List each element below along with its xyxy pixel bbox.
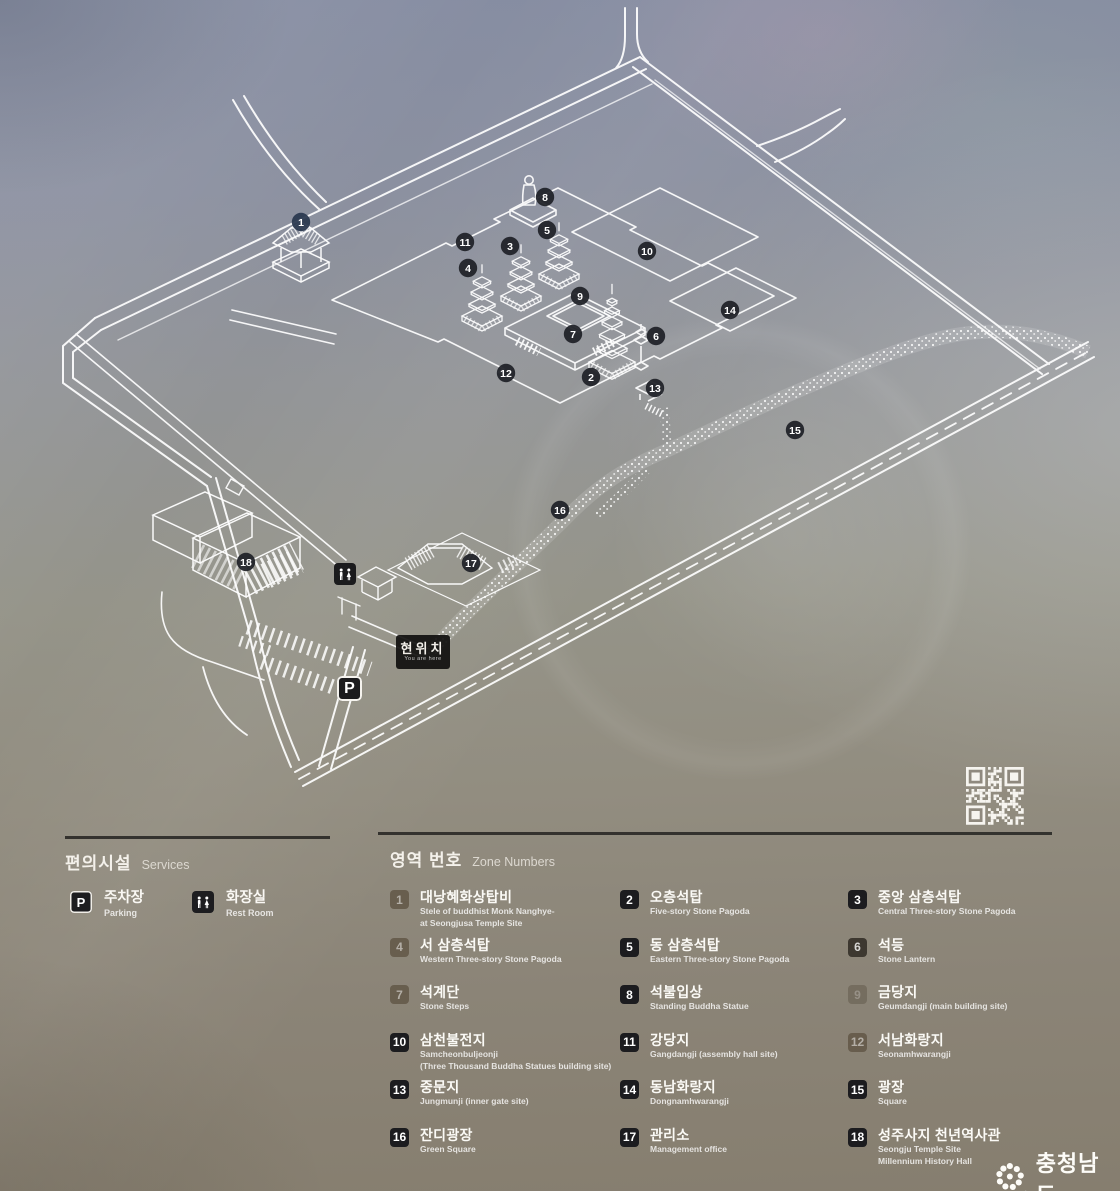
zone-number-badge: 11: [620, 1033, 639, 1052]
zone-item-11: 11강당지Gangdangji (assembly hall site): [620, 1032, 848, 1080]
zone-name-en: Stele of buddhist Monk Nanghye-: [420, 906, 555, 917]
map-marker-10: 10: [638, 242, 656, 260]
zone-item-6: 6석등Stone Lantern: [848, 937, 1110, 985]
zone-name-en: Samcheonbuljeonji: [420, 1049, 611, 1060]
map-marker-7: 7: [564, 325, 582, 343]
zone-name-ko: 서남화랑지: [878, 1032, 951, 1048]
parking-icon: P: [70, 891, 92, 913]
service-sublabel: Parking: [104, 908, 144, 918]
zone-name-ko: 동남화랑지: [650, 1079, 729, 1095]
zones-title-en: Zone Numbers: [472, 855, 555, 869]
map-marker-4: 4: [459, 259, 477, 277]
map-marker-15: 15: [786, 421, 804, 439]
zone-number-badge: 9: [848, 985, 867, 1004]
history-hall-building: [153, 492, 300, 597]
zone-name-ko: 금당지: [878, 984, 1007, 1000]
map-marker-2: 2: [582, 368, 600, 386]
zone-number-badge: 8: [620, 985, 639, 1004]
temple-complex-outline: [332, 176, 796, 414]
zone-name-en: Eastern Three-story Stone Pagoda: [650, 954, 789, 965]
zone-number-badge: 13: [390, 1080, 409, 1099]
zone-item-14: 14동남화랑지Dongnamhwarangji: [620, 1079, 848, 1127]
zone-name-en: Seonamhwarangji: [878, 1049, 951, 1060]
zone-number-badge: 14: [620, 1080, 639, 1099]
current-location-sublabel: You are here: [404, 657, 441, 663]
service-parking: P 주차장 Parking: [70, 891, 144, 918]
services-items: P 주차장 Parking 화장실 Rest Room: [70, 891, 274, 918]
svg-text:10: 10: [641, 246, 653, 258]
small-service-building: [358, 567, 396, 600]
svg-text:5: 5: [544, 225, 550, 237]
svg-text:14: 14: [724, 305, 736, 317]
map-marker-3: 3: [501, 237, 519, 255]
zone-name-en: Millennium History Hall: [878, 1156, 1001, 1167]
zone-name-ko: 성주사지 천년역사관: [878, 1127, 1001, 1143]
map-marker-5: 5: [538, 221, 556, 239]
zone-name-ko: 서 삼층석탑: [420, 937, 562, 953]
zone-name-ko: 광장: [878, 1079, 907, 1095]
services-title-en: Services: [142, 858, 190, 872]
services-title-ko: 편의시설: [65, 849, 132, 874]
zone-name-en: Management office: [650, 1144, 727, 1155]
svg-text:6: 6: [653, 331, 659, 343]
roads-and-boundary: [63, 8, 1094, 786]
zone-item-12: 12서남화랑지Seonamhwarangji: [848, 1032, 1110, 1080]
zone-name-en: Green Square: [420, 1144, 476, 1155]
zone-number-badge: 10: [390, 1033, 409, 1052]
svg-text:11: 11: [459, 237, 470, 249]
zone-name-en: Gangdangji (assembly hall site): [650, 1049, 778, 1060]
chungnam-flower-icon: [990, 1158, 1030, 1191]
zone-name-en: at Seongjusa Temple Site: [420, 918, 555, 929]
services-section-title: 편의시설 Services: [65, 849, 190, 874]
zone-name-ko: 강당지: [650, 1032, 778, 1048]
zone-item-3: 3중앙 삼층석탑Central Three-story Stone Pagoda: [848, 889, 1110, 937]
zone-name-en: Jungmunji (inner gate site): [420, 1096, 529, 1107]
zone-item-1: 1대낭혜화상탑비Stele of buddhist Monk Nanghye-a…: [390, 889, 620, 937]
site-map-illustration: 123456789101112131415161718: [0, 0, 1120, 840]
zone-name-en: Standing Buddha Statue: [650, 1001, 749, 1012]
zone-item-10: 10삼천불전지Samcheonbuljeonji(Three Thousand …: [390, 1032, 620, 1080]
zone-number-badge: 15: [848, 1080, 867, 1099]
zone-number-badge: 12: [848, 1033, 867, 1052]
current-location-badge: 현위치 You are here: [396, 635, 450, 669]
zone-name-en: Geumdangji (main building site): [878, 1001, 1007, 1012]
svg-text:7: 7: [570, 329, 576, 341]
zone-item-8: 8석불입상Standing Buddha Statue: [620, 984, 848, 1032]
service-label: 주차장: [104, 891, 144, 907]
zone-name-en: Central Three-story Stone Pagoda: [878, 906, 1015, 917]
restroom-icon: [334, 563, 356, 585]
zone-numbers-list: 1대낭혜화상탑비Stele of buddhist Monk Nanghye-a…: [390, 889, 1110, 1175]
map-marker-18: 18: [237, 553, 255, 571]
zone-number-badge: 16: [390, 1128, 409, 1147]
zone-item-16: 16잔디광장Green Square: [390, 1127, 620, 1175]
zone-item-17: 17관리소Management office: [620, 1127, 848, 1175]
services-divider: [65, 836, 330, 839]
zone-item-2: 2오층석탑Five-story Stone Pagoda: [620, 889, 848, 937]
zone-name-ko: 삼천불전지: [420, 1032, 611, 1048]
service-label: 화장실: [226, 891, 274, 907]
map-marker-17: 17: [462, 554, 480, 572]
zone-item-5: 5동 삼층석탑Eastern Three-story Stone Pagoda: [620, 937, 848, 985]
restroom-icon: [192, 891, 214, 913]
map-marker-12: 12: [497, 364, 515, 382]
zone-number-badge: 2: [620, 890, 639, 909]
zone-name-ko: 오층석탑: [650, 889, 750, 905]
zone-item-13: 13중문지Jungmunji (inner gate site): [390, 1079, 620, 1127]
map-marker-6: 6: [647, 327, 665, 345]
zone-name-ko: 중문지: [420, 1079, 529, 1095]
zone-number-badge: 18: [848, 1128, 867, 1147]
zone-number-badge: 3: [848, 890, 867, 909]
map-marker-11: 11: [456, 233, 474, 251]
zones-title-ko: 영역 번호: [390, 846, 462, 871]
svg-text:2: 2: [588, 372, 594, 384]
zone-name-ko: 석등: [878, 937, 935, 953]
zone-name-en: (Three Thousand Buddha Statues building …: [420, 1061, 611, 1072]
svg-text:15: 15: [789, 425, 801, 437]
parking-icon: P: [337, 676, 362, 701]
zone-item-9: 9금당지Geumdangji (main building site): [848, 984, 1110, 1032]
org-name: 충청남도: [1036, 1146, 1120, 1191]
service-sublabel: Rest Room: [226, 908, 274, 918]
zone-name-ko: 대낭혜화상탑비: [420, 889, 555, 905]
zone-name-en: Seongju Temple Site: [878, 1144, 1001, 1155]
zone-name-ko: 관리소: [650, 1127, 727, 1143]
zone-name-ko: 석불입상: [650, 984, 749, 1000]
zone-name-ko: 중앙 삼층석탑: [878, 889, 1015, 905]
svg-text:16: 16: [554, 505, 566, 517]
zone-name-en: Dongnamhwarangji: [650, 1096, 729, 1107]
svg-text:9: 9: [577, 291, 583, 303]
zone-item-15: 15광장Square: [848, 1079, 1110, 1127]
svg-text:13: 13: [649, 383, 661, 395]
current-location-label: 현위치: [401, 642, 446, 655]
zone-name-en: Stone Lantern: [878, 954, 935, 965]
zone-item-7: 7석계단Stone Steps: [390, 984, 620, 1032]
map-marker-8: 8: [536, 188, 554, 206]
map-marker-1: 1: [292, 213, 310, 231]
stone-pagoda: [589, 284, 635, 379]
zone-number-badge: 7: [390, 985, 409, 1004]
zone-name-en: Five-story Stone Pagoda: [650, 906, 750, 917]
svg-text:3: 3: [507, 241, 513, 253]
zone-name-en: Western Three-story Stone Pagoda: [420, 954, 562, 965]
qr-code: [966, 767, 1024, 825]
chungnam-logo: 충청남도: [990, 1146, 1120, 1191]
service-restroom: 화장실 Rest Room: [192, 891, 274, 918]
zone-name-en: Square: [878, 1096, 907, 1107]
map-marker-14: 14: [721, 301, 739, 319]
zone-number-badge: 5: [620, 938, 639, 957]
zone-name-ko: 동 삼층석탑: [650, 937, 789, 953]
svg-text:8: 8: [542, 192, 548, 204]
zones-section-title: 영역 번호 Zone Numbers: [390, 846, 555, 871]
temple-site-map-board: 123456789101112131415161718 현위치 You are …: [0, 0, 1120, 1191]
map-marker-16: 16: [551, 501, 569, 519]
svg-text:1: 1: [298, 217, 304, 229]
svg-text:17: 17: [465, 558, 477, 570]
zone-number-badge: 4: [390, 938, 409, 957]
zone-name-en: Stone Steps: [420, 1001, 469, 1012]
zone-number-badge: 17: [620, 1128, 639, 1147]
svg-text:4: 4: [465, 263, 471, 275]
zone-item-4: 4서 삼층석탑Western Three-story Stone Pagoda: [390, 937, 620, 985]
map-marker-13: 13: [646, 379, 664, 397]
svg-text:12: 12: [500, 368, 512, 380]
zone-number-badge: 6: [848, 938, 867, 957]
stone-wall-path: [424, 332, 1088, 660]
map-marker-9: 9: [571, 287, 589, 305]
zones-divider: [378, 832, 1052, 835]
zone-number-badge: 1: [390, 890, 409, 909]
zone-name-ko: 잔디광장: [420, 1127, 476, 1143]
svg-text:18: 18: [240, 557, 252, 569]
zone-name-ko: 석계단: [420, 984, 469, 1000]
